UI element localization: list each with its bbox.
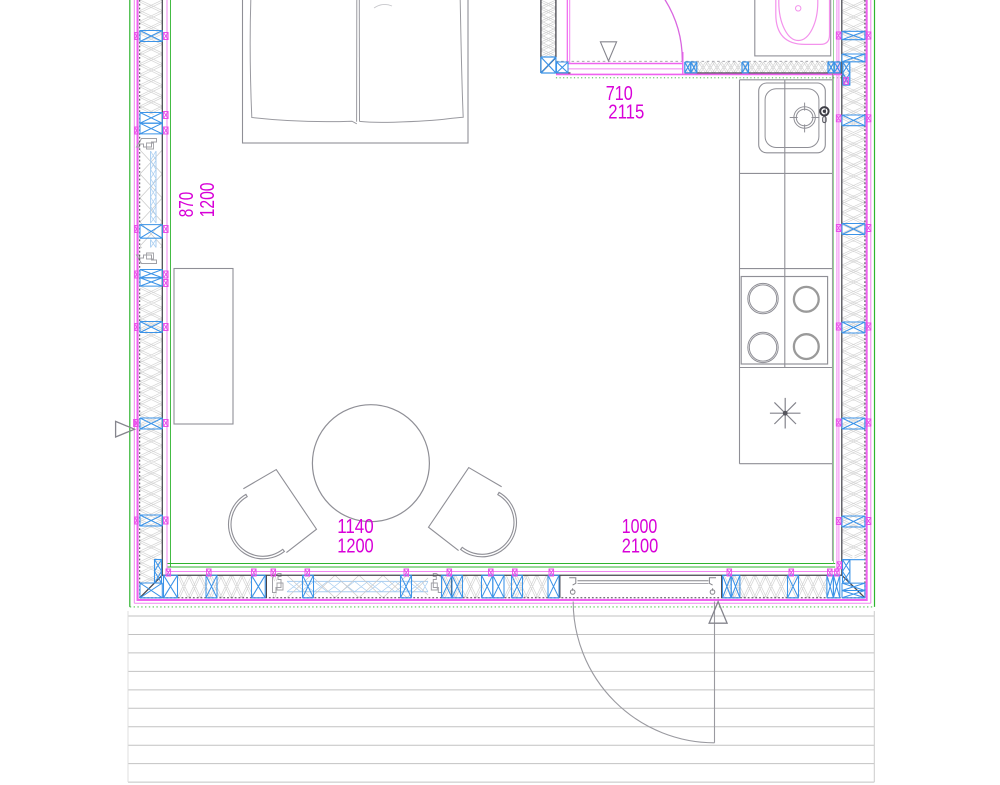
- svg-text:870: 870: [175, 192, 198, 218]
- svg-text:1200: 1200: [337, 534, 374, 557]
- svg-text:2100: 2100: [622, 534, 659, 557]
- svg-text:1200: 1200: [196, 183, 219, 218]
- svg-text:2115: 2115: [608, 101, 644, 124]
